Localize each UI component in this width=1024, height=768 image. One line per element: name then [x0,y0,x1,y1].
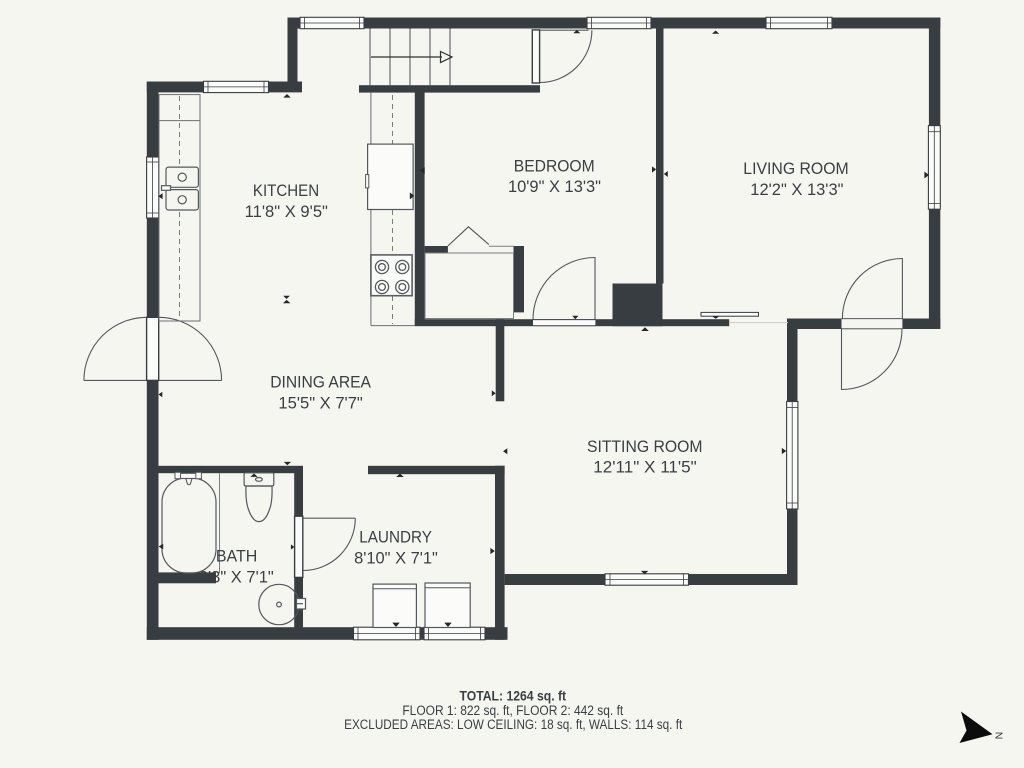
svg-text:LIVING ROOM: LIVING ROOM [743,159,848,178]
svg-text:BATH: BATH [216,547,257,566]
svg-text:N: N [993,732,1005,740]
svg-text:FLOOR 1: 822 sq. ft, FLOOR 2:: FLOOR 1: 822 sq. ft, FLOOR 2: 442 sq. ft [402,703,623,718]
svg-text:12'2" X 13'3": 12'2" X 13'3" [750,180,843,199]
svg-text:15'5" X 7'7": 15'5" X 7'7" [278,394,362,413]
svg-text:TOTAL: 1264 sq. ft: TOTAL: 1264 sq. ft [460,689,567,704]
svg-text:SITTING ROOM: SITTING ROOM [587,437,703,456]
svg-text:10'9" X 13'3": 10'9" X 13'3" [508,177,601,196]
svg-text:DINING AREA: DINING AREA [270,373,371,392]
svg-text:11'8" X 9'5": 11'8" X 9'5" [245,202,328,221]
svg-text:LAUNDRY: LAUNDRY [359,528,432,547]
svg-text:EXCLUDED AREAS: LOW CEILING: 1: EXCLUDED AREAS: LOW CEILING: 18 sq. ft, … [344,717,682,732]
svg-text:8'10" X 7'1": 8'10" X 7'1" [354,549,438,568]
svg-text:BEDROOM: BEDROOM [514,156,595,175]
svg-text:6'3" X 7'1": 6'3" X 7'1" [199,568,274,587]
svg-text:KITCHEN: KITCHEN [253,181,319,200]
svg-text:12'11" X 11'5": 12'11" X 11'5" [593,458,697,477]
